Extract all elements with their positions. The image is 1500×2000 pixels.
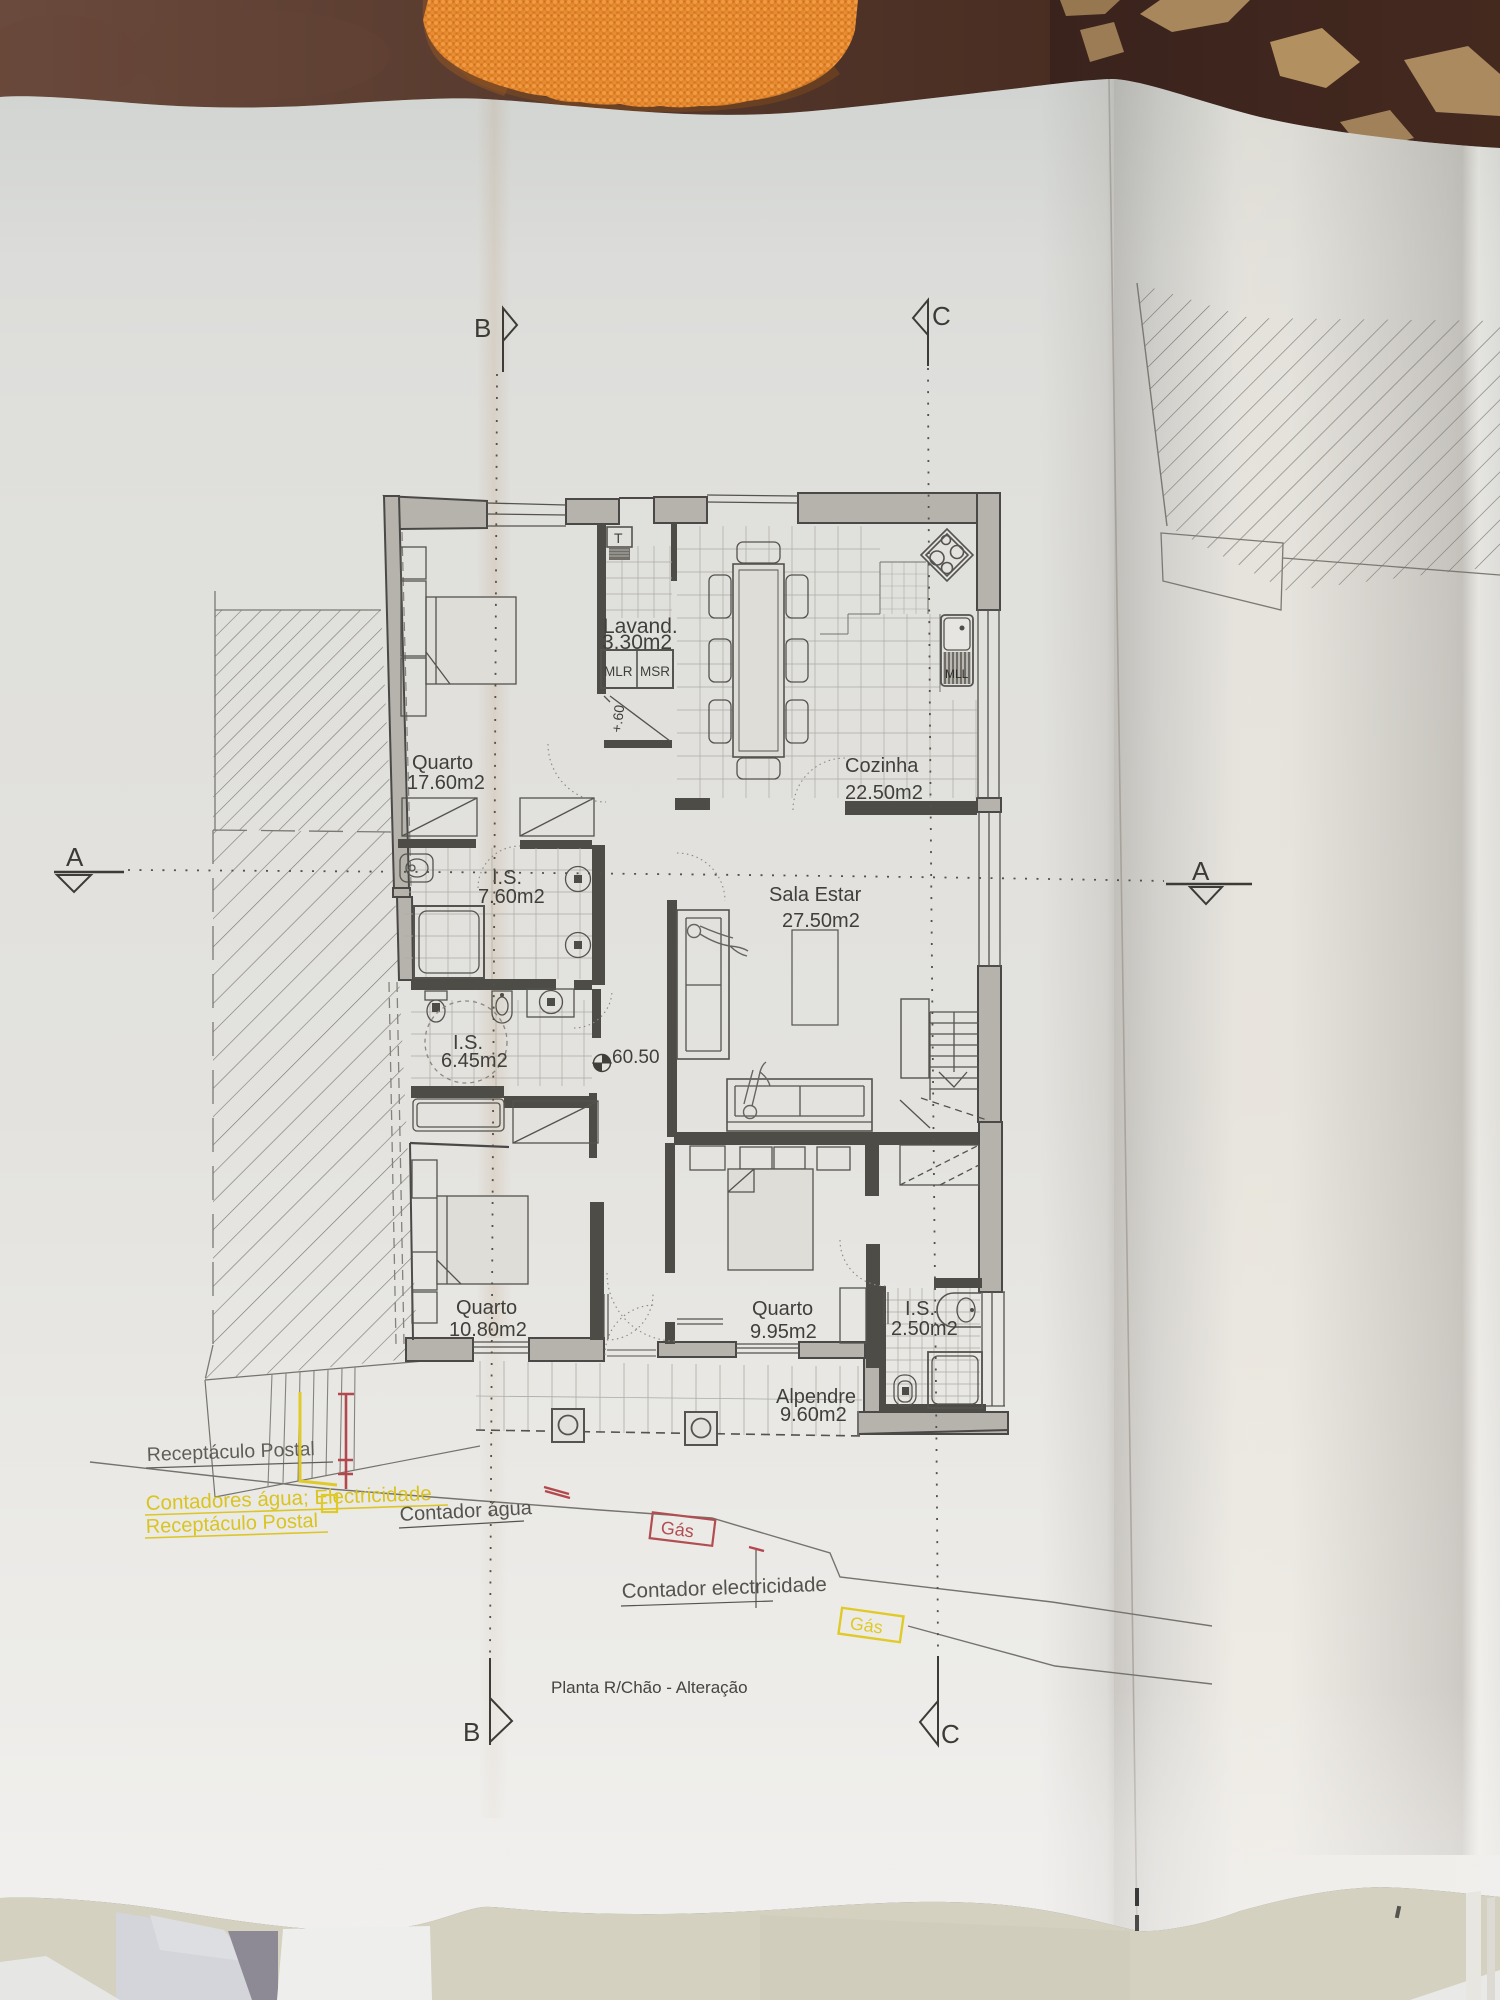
svg-text:A: A [1192,856,1210,886]
svg-text:3.30m2: 3.30m2 [602,631,672,654]
svg-text:7.60m2: 7.60m2 [478,886,545,908]
svg-text:B: B [474,313,491,343]
svg-text:Cozinha: Cozinha [845,755,919,777]
svg-text:10.80m2: 10.80m2 [449,1319,527,1341]
svg-text:Planta R/Chão - Alteração: Planta R/Chão - Alteração [551,1678,748,1697]
svg-text:C: C [932,301,951,331]
svg-text:22.50m2: 22.50m2 [845,782,923,804]
svg-text:60.50: 60.50 [612,1047,660,1068]
svg-text:MLL: MLL [945,667,969,681]
svg-text:Gás: Gás [660,1518,695,1542]
svg-text:MLR: MLR [604,664,633,679]
svg-text:2.50m2: 2.50m2 [891,1318,958,1340]
svg-text:Sala Estar: Sala Estar [769,884,862,906]
svg-text:I.S.: I.S. [905,1298,935,1320]
svg-text:Quarto: Quarto [456,1297,517,1319]
svg-text:C: C [941,1719,960,1749]
svg-text:A: A [66,842,84,872]
svg-text:Quarto: Quarto [412,752,473,774]
svg-text:+.60: +.60 [608,704,627,734]
svg-text:6.45m2: 6.45m2 [441,1050,508,1072]
svg-text:T: T [614,530,623,546]
svg-text:17.60m2: 17.60m2 [407,772,485,794]
svg-text:27.50m2: 27.50m2 [782,910,860,932]
svg-text:MSR: MSR [640,664,670,679]
svg-text:9.60m2: 9.60m2 [780,1404,847,1426]
svg-text:Quarto: Quarto [752,1298,813,1320]
svg-text:9.95m2: 9.95m2 [750,1321,817,1343]
svg-text:B: B [463,1717,480,1747]
